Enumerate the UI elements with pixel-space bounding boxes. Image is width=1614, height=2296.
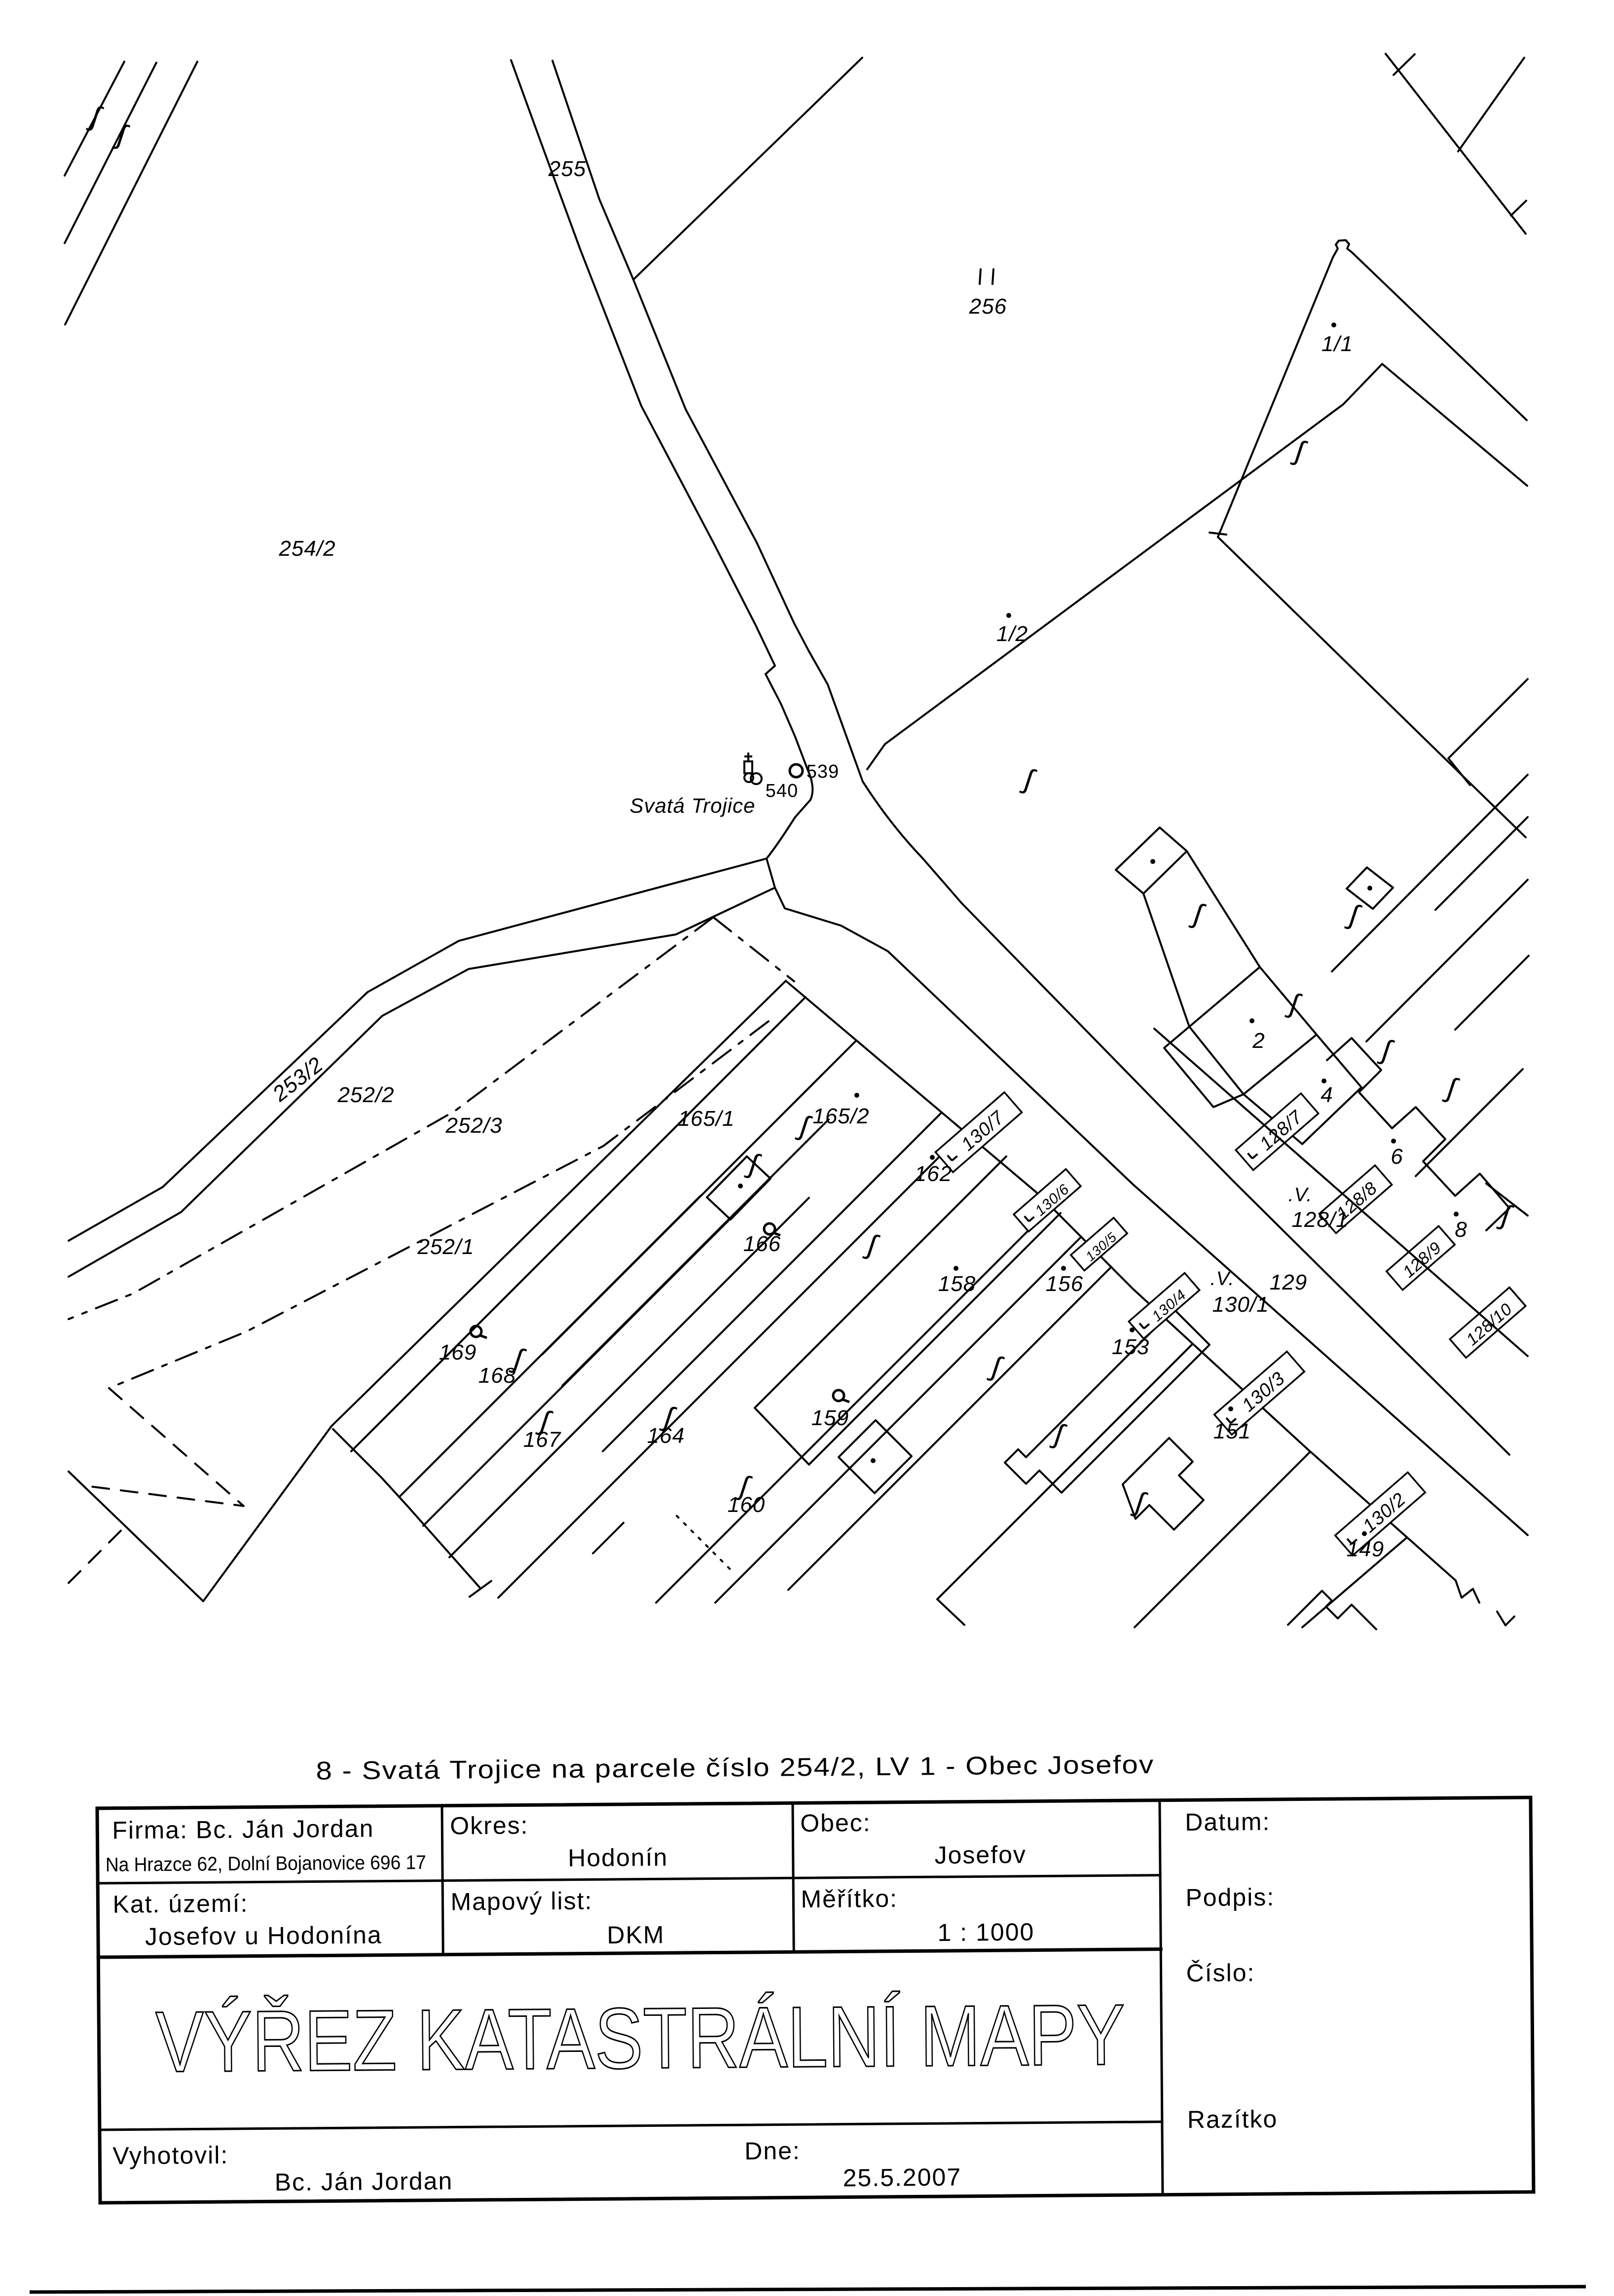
svg-text:255: 255 [548, 157, 586, 181]
svg-text:Hodonín: Hodonín [568, 1843, 668, 1872]
svg-text:1/2: 1/2 [996, 622, 1028, 646]
svg-text:∫: ∫ [1496, 1198, 1516, 1232]
svg-text:6: 6 [1391, 1145, 1403, 1169]
svg-text:159: 159 [811, 1406, 849, 1430]
svg-text:166: 166 [743, 1232, 781, 1256]
svg-text:∫: ∫ [986, 1350, 1006, 1384]
svg-text:Firma: Bc. Ján Jordan: Firma: Bc. Ján Jordan [112, 1815, 374, 1844]
svg-text:Kat. území:: Kat. území: [112, 1890, 248, 1918]
svg-text:160: 160 [728, 1493, 765, 1517]
svg-text:254/2: 254/2 [278, 537, 335, 561]
svg-text:Mapový list:: Mapový list: [450, 1887, 592, 1915]
svg-text:Podpis:: Podpis: [1185, 1883, 1275, 1911]
svg-text:∫: ∫ [1019, 762, 1039, 796]
svg-text:∫: ∫ [743, 1147, 764, 1181]
svg-text:∫: ∫ [1049, 1417, 1069, 1451]
svg-text:∫: ∫ [1289, 434, 1310, 468]
svg-text:8 - Svatá Trojice na parcele č: 8 - Svatá Trojice na parcele číslo 254/2… [316, 1751, 1154, 1786]
svg-text:153: 153 [1112, 1335, 1149, 1359]
svg-text:Bc. Ján Jordan: Bc. Ján Jordan [275, 2167, 453, 2196]
svg-text:169: 169 [439, 1340, 477, 1364]
svg-text:2: 2 [1252, 1029, 1265, 1053]
svg-text:∫: ∫ [111, 118, 132, 152]
svg-text:165/1: 165/1 [678, 1107, 734, 1131]
svg-text:Josefov: Josefov [934, 1841, 1027, 1869]
svg-text:Datum:: Datum: [1185, 1808, 1271, 1836]
svg-text:∫: ∫ [1441, 1071, 1462, 1105]
svg-text:VÝŘEZ KATASTRÁLNÍ MAPY: VÝŘEZ KATASTRÁLNÍ MAPY [155, 1987, 1125, 2090]
svg-text:Číslo:: Číslo: [1186, 1959, 1255, 1987]
svg-text:4: 4 [1321, 1083, 1333, 1107]
svg-text:149: 149 [1347, 1537, 1384, 1561]
svg-text:256: 256 [969, 294, 1007, 319]
svg-text:∫: ∫ [1130, 1485, 1150, 1519]
svg-text:540: 540 [766, 781, 798, 801]
svg-text:∫: ∫ [85, 100, 106, 134]
svg-text:.V.: .V. [1288, 1184, 1313, 1206]
svg-text:∫: ∫ [1344, 898, 1364, 932]
svg-text:Svatá Trojice: Svatá Trojice [630, 794, 756, 817]
svg-text:162: 162 [915, 1162, 952, 1186]
svg-text:130/1: 130/1 [1212, 1292, 1269, 1317]
svg-text:252/1: 252/1 [417, 1235, 474, 1259]
svg-text:165/2: 165/2 [812, 1104, 869, 1128]
svg-text:Obec:: Obec: [800, 1809, 871, 1837]
svg-text:Razítko: Razítko [1187, 2105, 1278, 2133]
svg-text:128/1: 128/1 [1291, 1208, 1348, 1232]
svg-text:Okres:: Okres: [450, 1811, 529, 1839]
svg-text:∫: ∫ [1188, 897, 1208, 931]
svg-text:8: 8 [1455, 1218, 1467, 1242]
svg-text:539: 539 [807, 761, 839, 782]
svg-text:Josefov u Hodonína: Josefov u Hodonína [145, 1921, 382, 1951]
svg-text:156: 156 [1046, 1272, 1083, 1296]
svg-text:DKM: DKM [607, 1921, 665, 1949]
svg-text:.V.: .V. [1210, 1268, 1235, 1290]
svg-text:129: 129 [1270, 1270, 1307, 1294]
svg-text:25.5.2007: 25.5.2007 [843, 2163, 962, 2192]
svg-text:168: 168 [478, 1363, 516, 1388]
svg-text:252/2: 252/2 [337, 1083, 394, 1107]
svg-text:1 : 1000: 1 : 1000 [937, 1918, 1034, 1946]
svg-text:Dne:: Dne: [744, 2137, 801, 2165]
svg-text:Měřítko:: Měřítko: [801, 1885, 898, 1913]
svg-text:1/1: 1/1 [1321, 332, 1353, 356]
svg-text:158: 158 [938, 1272, 976, 1296]
svg-text:252/3: 252/3 [445, 1113, 502, 1138]
svg-text:151: 151 [1213, 1419, 1251, 1443]
svg-text:Vyhotovil:: Vyhotovil: [112, 2141, 228, 2170]
svg-text:∫: ∫ [1376, 1033, 1396, 1067]
svg-text:Na Hrazce 62, Dolní Bojanovice: Na Hrazce 62, Dolní Bojanovice 696 17 [106, 1852, 426, 1876]
svg-text:∫: ∫ [862, 1228, 882, 1262]
